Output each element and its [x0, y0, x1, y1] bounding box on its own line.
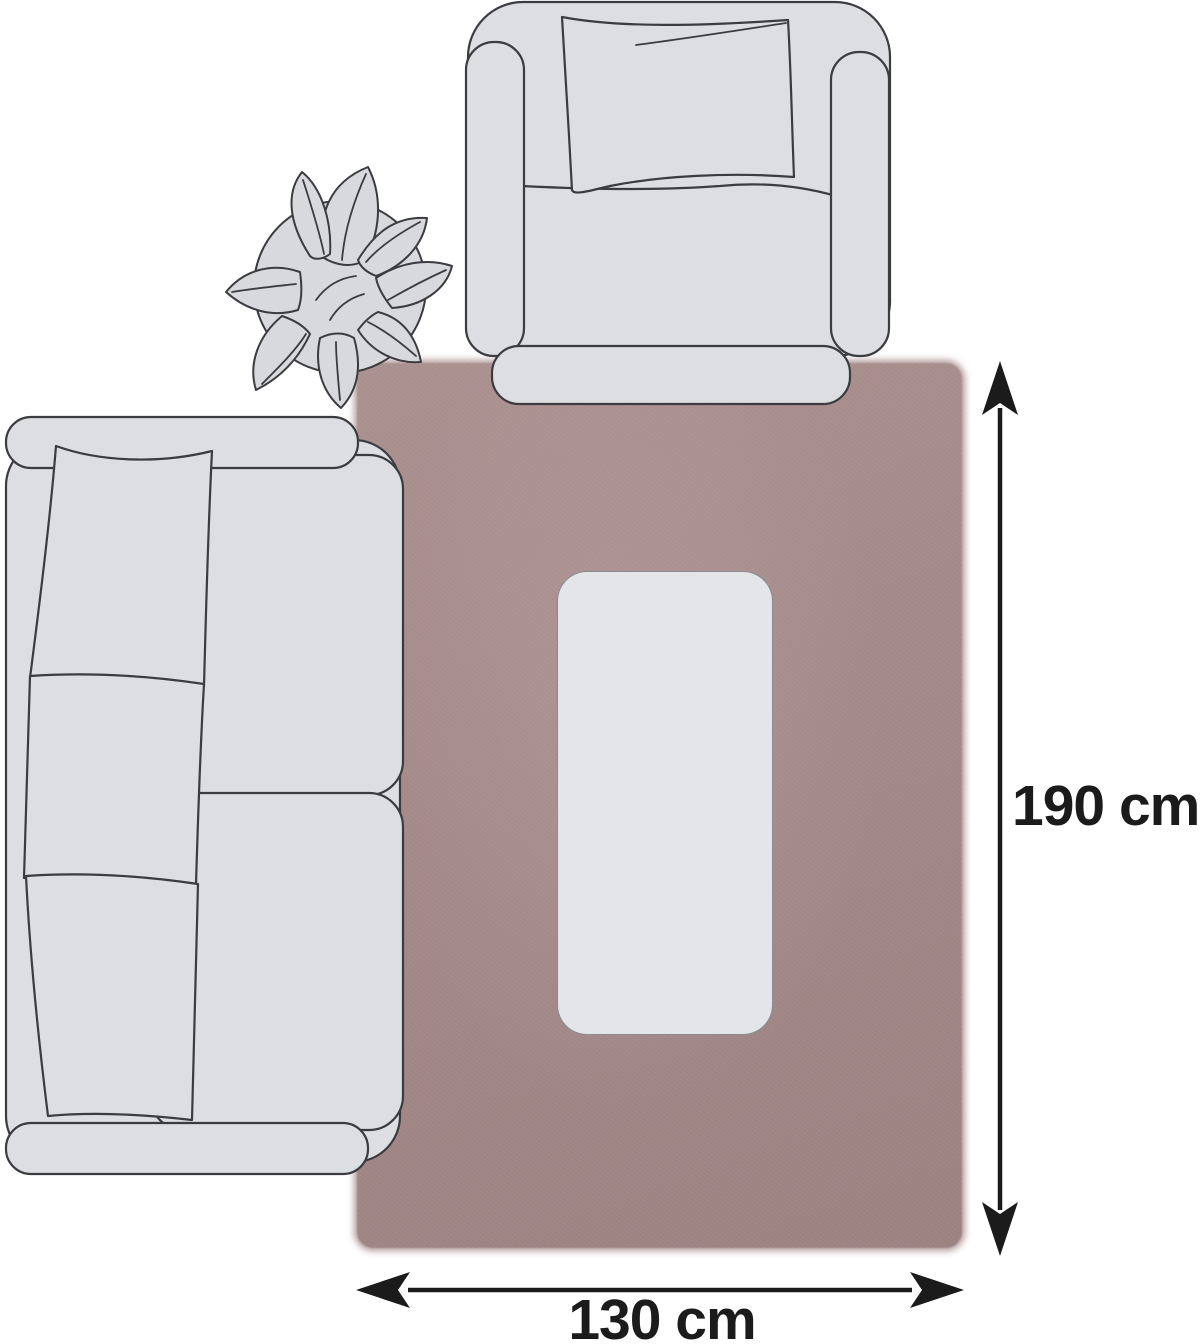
- arrowhead-left: [356, 1272, 410, 1308]
- arrowhead-up: [982, 361, 1018, 415]
- product-dimension-diagram: 190 cm 130 cm: [0, 0, 1200, 1344]
- sofa-illustration: [6, 417, 403, 1174]
- sofa-pillow-1: [30, 446, 212, 686]
- plant-illustration: [226, 167, 452, 408]
- armchair-pillow: [562, 17, 794, 193]
- armchair-seat-front: [492, 346, 850, 404]
- sofa-armrest-bottom: [6, 1123, 368, 1174]
- armchair-illustration: [466, 2, 890, 404]
- height-label: 190 cm: [1012, 778, 1199, 835]
- arrowhead-down: [982, 1202, 1018, 1256]
- armchair-armrest-right: [831, 52, 889, 356]
- armchair-armrest-left: [466, 42, 524, 356]
- sofa-pillow-2: [24, 674, 204, 884]
- width-label: 130 cm: [562, 1292, 762, 1344]
- sofa-pillow-3: [26, 874, 198, 1120]
- furniture-line-art: [0, 0, 1200, 1344]
- arrowhead-right: [910, 1272, 964, 1308]
